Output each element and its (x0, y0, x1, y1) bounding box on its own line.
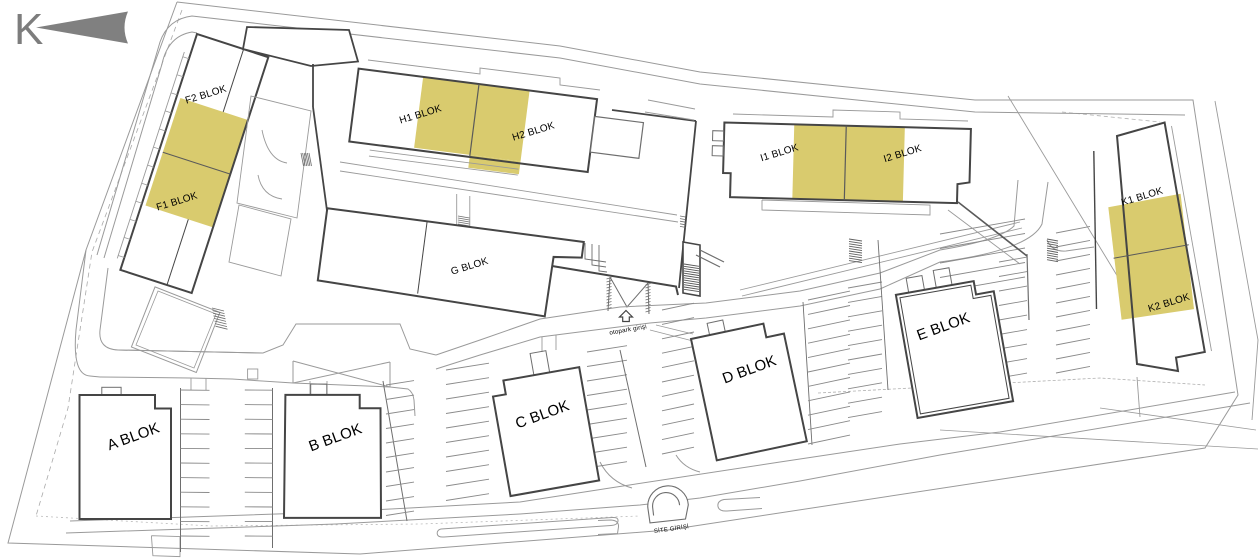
svg-text:K: K (14, 5, 43, 54)
